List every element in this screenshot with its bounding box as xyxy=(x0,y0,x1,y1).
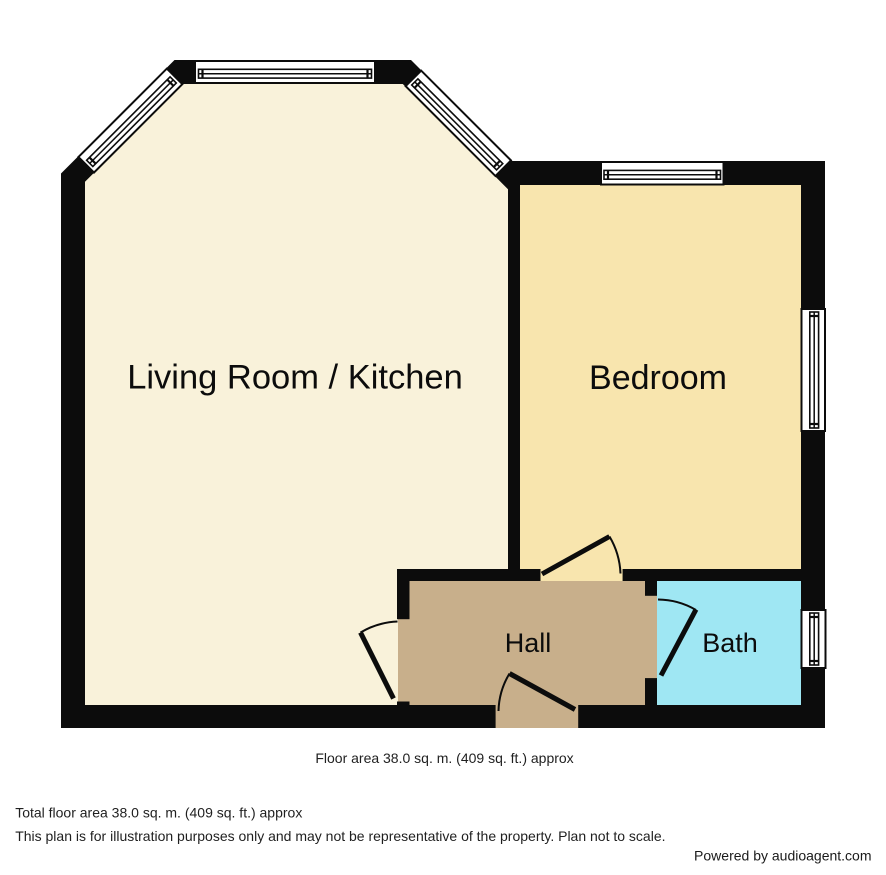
svg-text:Powered by audioagent.com: Powered by audioagent.com xyxy=(694,848,871,864)
svg-text:Bedroom: Bedroom xyxy=(589,359,727,397)
svg-text:Bath: Bath xyxy=(702,628,758,658)
svg-text:Living Room / Kitchen: Living Room / Kitchen xyxy=(127,359,463,397)
svg-text:Floor area 38.0 sq. m. (409 sq: Floor area 38.0 sq. m. (409 sq. ft.) app… xyxy=(315,750,573,766)
svg-text:This plan is for illustration: This plan is for illustration purposes o… xyxy=(15,828,665,844)
svg-text:Total floor area 38.0 sq. m. (: Total floor area 38.0 sq. m. (409 sq. ft… xyxy=(15,805,302,821)
svg-text:Hall: Hall xyxy=(505,628,552,658)
